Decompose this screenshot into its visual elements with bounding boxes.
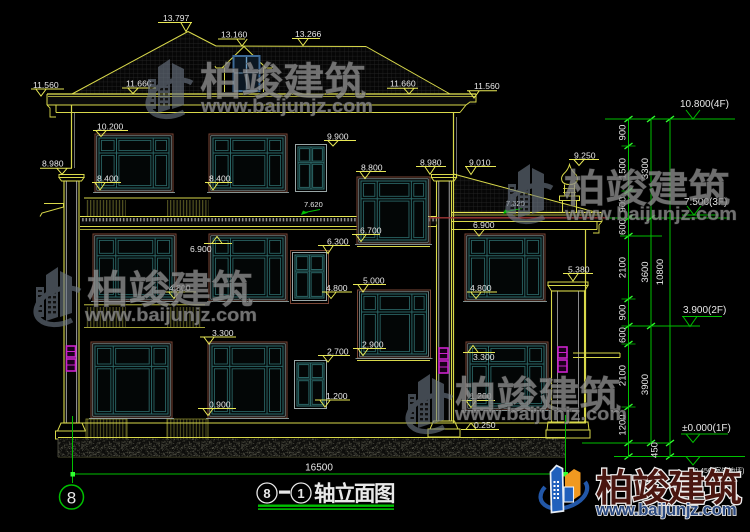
svg-text:2100: 2100: [618, 257, 629, 278]
svg-text:www.baijunjz.com: www.baijunjz.com: [454, 404, 627, 424]
svg-text:www.baijunjz.com: www.baijunjz.com: [564, 204, 737, 224]
svg-text:6.900: 6.900: [190, 244, 212, 254]
svg-text:900: 900: [618, 305, 629, 321]
svg-text:www.baijunjz.com: www.baijunjz.com: [200, 96, 373, 116]
svg-text:8: 8: [263, 486, 270, 501]
svg-text:11.560: 11.560: [474, 81, 500, 91]
svg-text:3.300: 3.300: [473, 352, 495, 362]
svg-text:www.baijunjz.com: www.baijunjz.com: [595, 500, 737, 519]
svg-text:11.660: 11.660: [390, 79, 416, 89]
svg-text:3900: 3900: [640, 374, 651, 395]
svg-text:600: 600: [618, 327, 629, 343]
svg-text:1: 1: [297, 486, 304, 501]
svg-text:8: 8: [67, 489, 76, 508]
svg-text:13.797: 13.797: [163, 13, 190, 23]
svg-text:13.160: 13.160: [221, 30, 248, 40]
svg-text:±0.000(1F): ±0.000(1F): [682, 423, 731, 434]
svg-text:轴立面图: 轴立面图: [314, 481, 395, 506]
svg-text:3600: 3600: [640, 261, 651, 282]
svg-text:900: 900: [618, 125, 629, 141]
svg-text:6.900: 6.900: [473, 220, 495, 230]
svg-text:10800: 10800: [655, 259, 666, 285]
svg-text:450: 450: [650, 442, 661, 458]
svg-text:8.980: 8.980: [42, 159, 64, 169]
svg-text:www.baijunjz.com: www.baijunjz.com: [84, 305, 257, 325]
svg-text:10.800(4F): 10.800(4F): [680, 99, 729, 110]
svg-text:3.900(2F): 3.900(2F): [683, 305, 726, 316]
svg-text:7.620: 7.620: [304, 200, 323, 209]
svg-text:13.266: 13.266: [295, 29, 322, 39]
svg-text:11.660: 11.660: [126, 79, 152, 89]
svg-text:16500: 16500: [305, 463, 333, 474]
